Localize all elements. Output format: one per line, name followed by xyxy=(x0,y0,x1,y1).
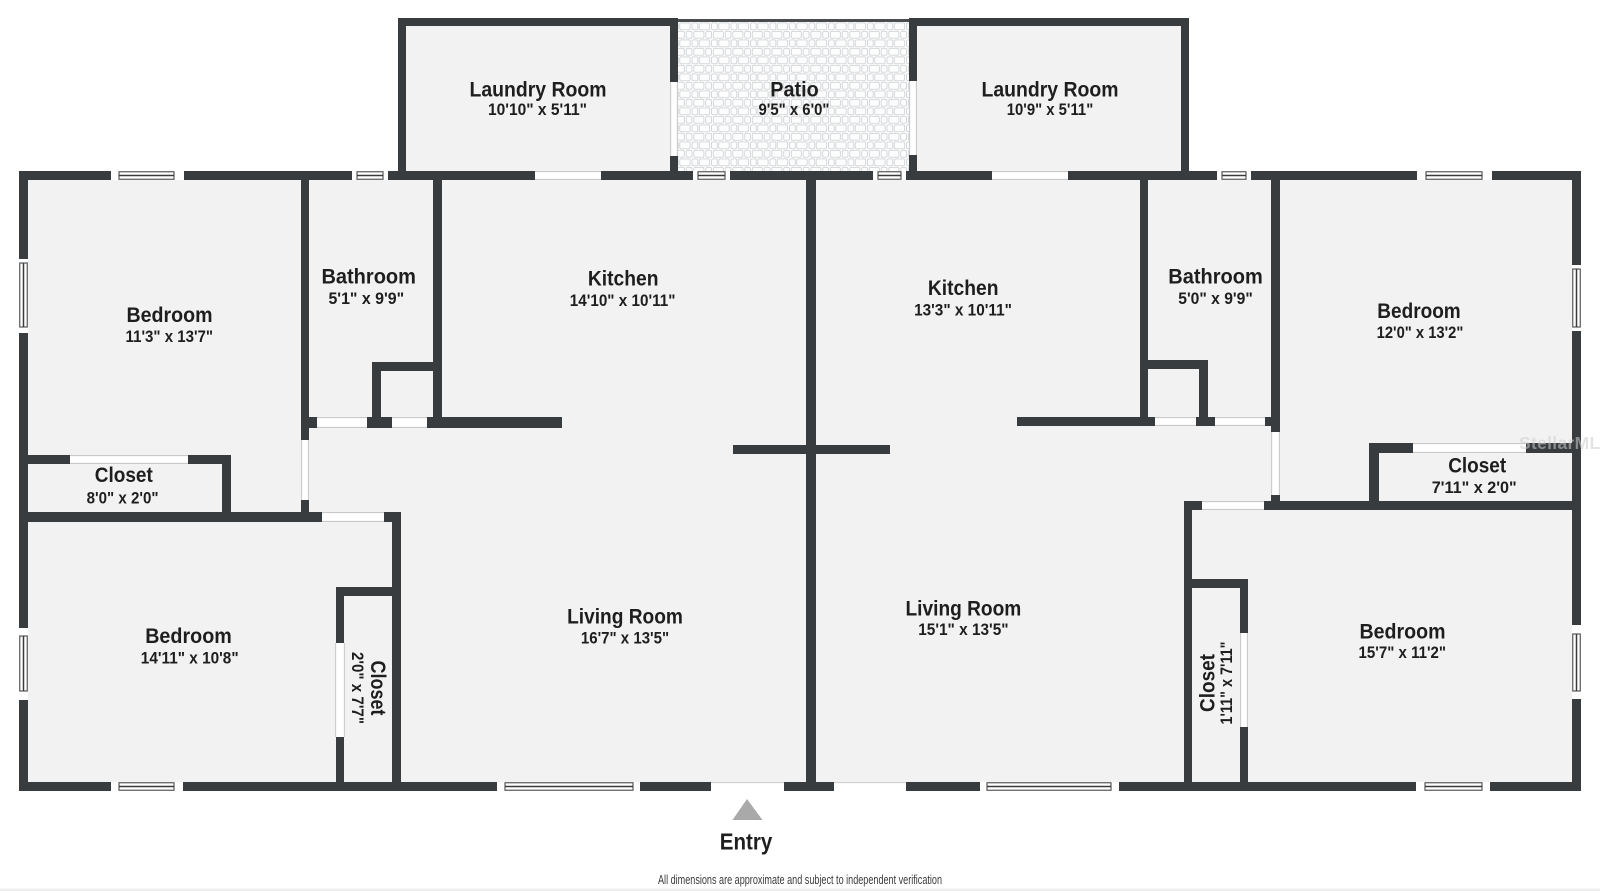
svg-text:15'1" x 13'5": 15'1" x 13'5" xyxy=(918,621,1008,639)
svg-text:Closet: Closet xyxy=(1196,654,1220,712)
svg-text:10'10" x 5'11": 10'10" x 5'11" xyxy=(488,101,587,119)
svg-text:2'0" x 7'7": 2'0" x 7'7" xyxy=(348,652,366,724)
svg-text:15'7" x 11'2": 15'7" x 11'2" xyxy=(1359,644,1447,662)
svg-text:All dimensions are approximate: All dimensions are approximate and subje… xyxy=(658,872,942,887)
svg-text:13'3" x 10'11": 13'3" x 10'11" xyxy=(914,302,1012,320)
svg-text:1'11" x 7'11": 1'11" x 7'11" xyxy=(1218,642,1236,725)
svg-text:5'0" x 9'9": 5'0" x 9'9" xyxy=(1178,290,1253,308)
svg-text:Closet: Closet xyxy=(1448,454,1506,478)
svg-text:Bathroom: Bathroom xyxy=(321,265,416,289)
svg-text:Entry: Entry xyxy=(720,829,773,855)
svg-text:Closet: Closet xyxy=(366,661,390,716)
svg-text:14'11" x 10'8": 14'11" x 10'8" xyxy=(141,650,239,668)
svg-text:16'7" x 13'5": 16'7" x 13'5" xyxy=(581,630,669,648)
svg-text:Bedroom: Bedroom xyxy=(1377,299,1460,323)
svg-text:Laundry Room: Laundry Room xyxy=(470,78,607,102)
svg-text:Patio: Patio xyxy=(770,78,819,102)
svg-text:12'0" x 13'2": 12'0" x 13'2" xyxy=(1377,324,1464,342)
svg-text:Bedroom: Bedroom xyxy=(127,303,213,327)
svg-text:9'5" x 6'0": 9'5" x 6'0" xyxy=(759,101,830,119)
svg-text:Laundry Room: Laundry Room xyxy=(982,78,1119,102)
svg-text:Living Room: Living Room xyxy=(906,597,1022,621)
svg-text:10'9" x 5'11": 10'9" x 5'11" xyxy=(1007,101,1094,119)
svg-text:5'1" x 9'9": 5'1" x 9'9" xyxy=(328,290,404,308)
svg-text:11'3" x 13'7": 11'3" x 13'7" xyxy=(126,328,214,346)
svg-text:Bedroom: Bedroom xyxy=(145,624,232,648)
svg-text:7'11" x 2'0": 7'11" x 2'0" xyxy=(1432,479,1517,497)
svg-text:Closet: Closet xyxy=(95,463,153,487)
svg-text:Living Room: Living Room xyxy=(567,605,683,629)
svg-text:Kitchen: Kitchen xyxy=(588,267,659,291)
svg-text:Kitchen: Kitchen xyxy=(928,276,999,300)
svg-text:14'10" x 10'11": 14'10" x 10'11" xyxy=(570,292,676,310)
svg-text:8'0" x 2'0": 8'0" x 2'0" xyxy=(87,490,159,508)
svg-text:Bedroom: Bedroom xyxy=(1360,620,1446,644)
svg-text:StellarMLS: StellarMLS xyxy=(1519,433,1600,453)
svg-text:Bathroom: Bathroom xyxy=(1168,265,1263,289)
